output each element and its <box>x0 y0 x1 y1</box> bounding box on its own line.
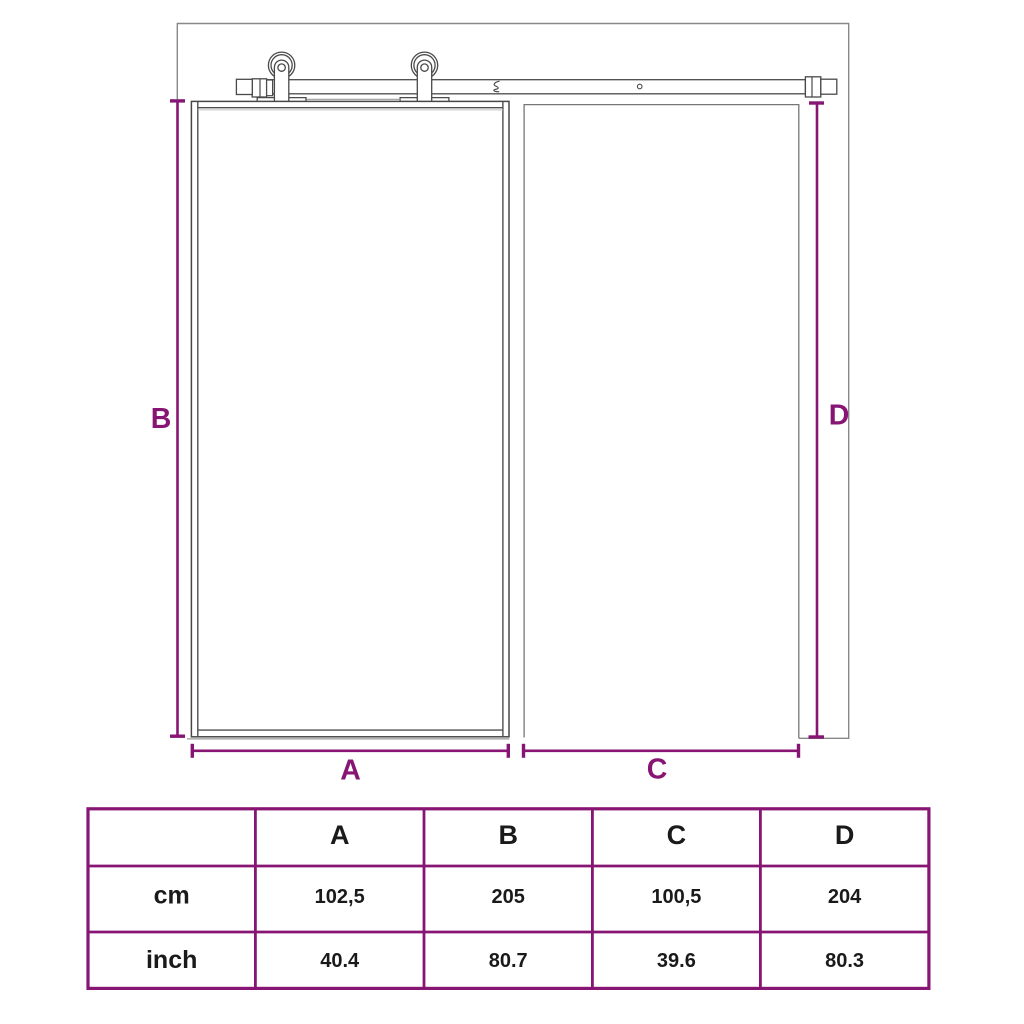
svg-text:cm: cm <box>154 882 190 910</box>
svg-text:A: A <box>340 754 361 786</box>
svg-text:205: 205 <box>492 886 525 908</box>
svg-text:40.4: 40.4 <box>320 950 360 972</box>
svg-text:B: B <box>498 820 518 850</box>
svg-text:B: B <box>151 403 172 435</box>
svg-text:D: D <box>835 820 855 850</box>
svg-text:80.7: 80.7 <box>489 950 528 972</box>
svg-text:204: 204 <box>828 886 862 908</box>
svg-text:A: A <box>330 820 350 850</box>
svg-text:80.3: 80.3 <box>825 950 864 972</box>
svg-text:102,5: 102,5 <box>315 886 365 908</box>
svg-text:C: C <box>647 754 668 786</box>
svg-text:C: C <box>667 820 687 850</box>
svg-text:100,5: 100,5 <box>651 886 701 908</box>
svg-text:39.6: 39.6 <box>657 950 696 972</box>
svg-text:inch: inch <box>146 946 197 974</box>
svg-text:D: D <box>829 400 850 432</box>
